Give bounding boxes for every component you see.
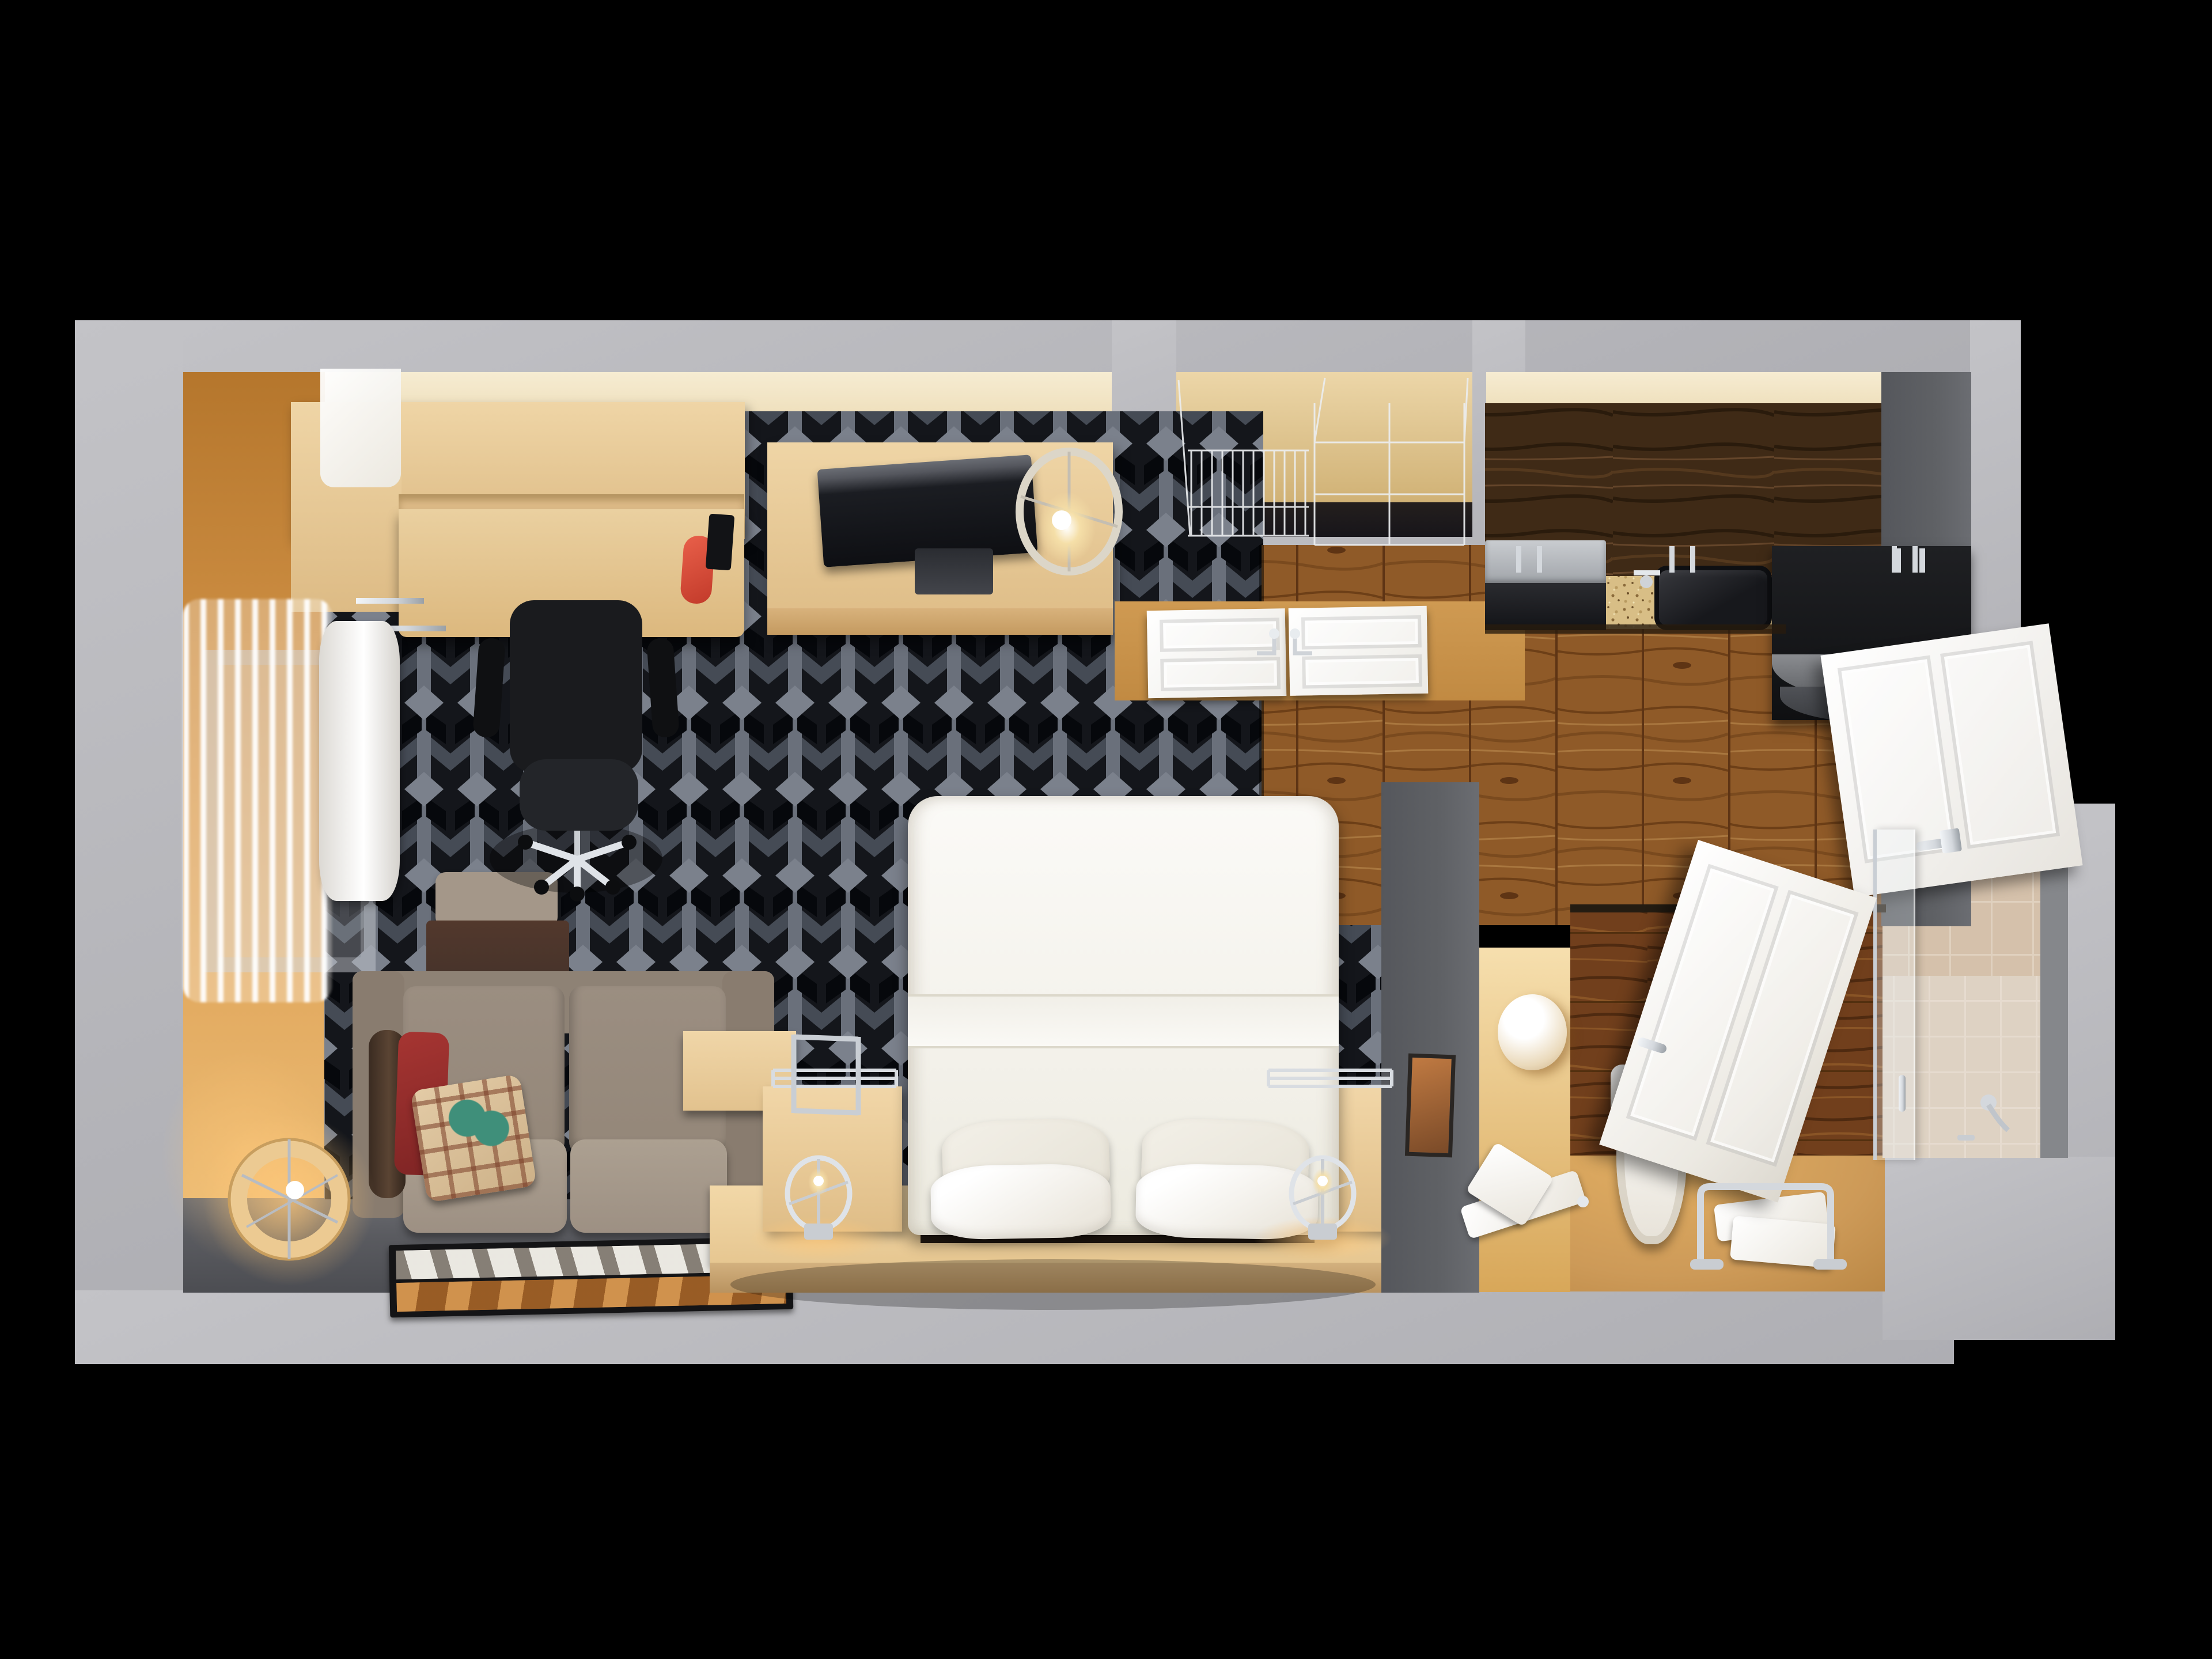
framed-art: [1405, 1054, 1456, 1158]
tv-console-front: [767, 608, 1113, 635]
tv-stand: [915, 548, 993, 594]
entry-door-handle-plate: [1940, 828, 1962, 853]
desk-drawer-pull: [356, 598, 424, 604]
sphere-sconce: [1498, 994, 1567, 1070]
cooktop: [1485, 540, 1606, 585]
curtain-valance: [320, 369, 401, 487]
kitchen-sink: [1654, 566, 1772, 630]
sheer-curtains: [183, 599, 332, 1002]
range-front: [1485, 583, 1606, 630]
armchair-back: [435, 872, 558, 927]
pillow-leaf-motif: [442, 1090, 513, 1154]
closet-door-left: [1147, 608, 1287, 698]
closet-door-right: [1289, 606, 1429, 696]
desk-phone-base: [706, 514, 735, 571]
stand-towel: [1730, 1215, 1836, 1268]
counter-lip: [1485, 624, 1786, 634]
entry-door: [1820, 623, 2082, 897]
bed-pillow-front: [930, 1163, 1111, 1240]
shower-glass: [1873, 829, 1915, 1160]
floorplan-render: [0, 0, 2212, 1659]
shower-door-handle: [1899, 1075, 1906, 1112]
duvet-fold: [908, 994, 1339, 1048]
bed-platform-edge: [710, 1263, 1396, 1293]
closet-doors: [1147, 606, 1429, 698]
nightstand-left: [763, 1086, 902, 1232]
ac-unit: [319, 621, 400, 901]
bed-pillow-front: [1135, 1163, 1319, 1240]
sofa-seat-cushion: [570, 1139, 727, 1233]
